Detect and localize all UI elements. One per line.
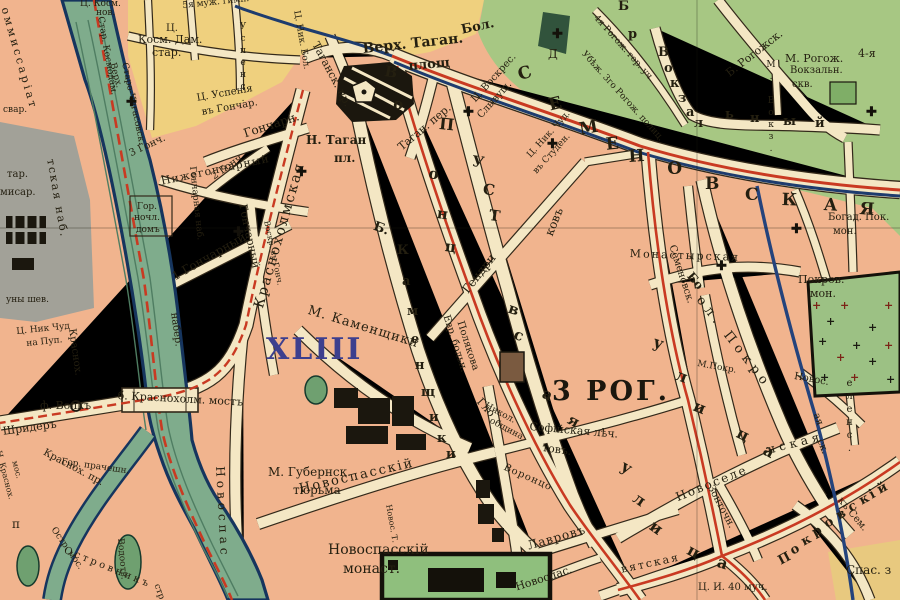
map-label: и <box>446 448 456 461</box>
map-label: набер. <box>168 312 183 347</box>
map-label: В <box>383 64 398 81</box>
map-label: М.Покр. <box>696 360 737 376</box>
map-label: Таганск. пр. <box>310 40 353 108</box>
map-label: Б <box>618 0 629 13</box>
cemetery-plus-icon: + <box>840 300 849 311</box>
district-label-xliii: XLIII <box>266 332 362 367</box>
map-label: к <box>437 432 446 445</box>
map-label: К <box>781 192 797 210</box>
cemetery-plus-icon: + <box>812 300 821 311</box>
map-label: вятская <box>620 552 681 575</box>
map-label: Т <box>488 208 501 224</box>
map-label: й <box>875 480 890 496</box>
map-label: п <box>12 518 20 530</box>
map-label: Б. <box>372 220 391 238</box>
map-label: площ <box>408 56 450 73</box>
cemetery-plus-icon: + <box>850 372 859 383</box>
map-label: В <box>658 46 669 59</box>
map-label: С <box>482 182 496 199</box>
map-label: Покров. <box>798 274 844 285</box>
district-label-3rog: 3 РОГ. <box>552 376 670 407</box>
cemetery-plus-icon: + <box>836 352 845 363</box>
map-label: б. Краснохолм. мостъ <box>117 390 243 408</box>
map-label: Е <box>605 136 620 154</box>
map-label: н <box>436 206 449 222</box>
map-label: С <box>516 64 534 84</box>
map-label: Гор. <box>137 203 157 212</box>
cemetery-plus-icon: + <box>818 336 827 347</box>
map-label: свар. <box>3 106 27 115</box>
map-label: щ <box>421 386 435 399</box>
map-label: Зонточн. <box>705 484 736 530</box>
map-label: на Пуп. <box>26 336 63 349</box>
cemetery-plus-icon: + <box>884 300 893 311</box>
map-label: Краснох. <box>66 328 82 376</box>
church-cross-icon: ✚ <box>552 28 563 41</box>
map-label: товъ. <box>541 442 572 457</box>
map-label: н <box>750 112 760 125</box>
map-label: Верх. Таган. <box>362 31 464 55</box>
map-label: П <box>438 116 455 133</box>
map-label: домъ <box>136 226 160 235</box>
map-label: еленс. <box>844 378 854 456</box>
map-label: П <box>776 550 793 567</box>
cemetery-plus-icon: + <box>820 372 829 383</box>
map-label: Софійская лѣч. <box>529 421 619 440</box>
map-label: Н <box>628 148 645 166</box>
map-label: ночл. <box>134 214 160 223</box>
map-label: у <box>651 334 666 352</box>
map-label: ф. Волкъ <box>40 400 91 411</box>
cemetery-plus-icon: + <box>886 374 895 385</box>
map-label: 5я муж. гимн. <box>182 0 250 11</box>
map-label: пл. <box>334 152 355 164</box>
cemetery-plus-icon: + <box>852 340 861 351</box>
map-label: ц <box>444 239 457 255</box>
church-cross-icon: ✚ <box>233 226 244 239</box>
map-label: р <box>628 28 637 41</box>
map-label: Ц. Ник Чуд <box>16 322 70 337</box>
map-label: уны шев. <box>6 296 49 305</box>
map-label: о <box>788 542 802 558</box>
map-label: К <box>397 244 409 257</box>
map-label: н <box>415 359 425 372</box>
map-label: Косм. Дам. <box>138 34 202 45</box>
map-label: монаст. <box>343 562 400 576</box>
church-cross-icon: ✚ <box>716 260 727 273</box>
map-label: Е <box>547 95 564 115</box>
map-label: ц <box>684 542 702 562</box>
map-label: М. Губернск. <box>268 466 351 478</box>
map-label: Новоспас <box>214 466 231 559</box>
map-label: и <box>429 411 439 424</box>
map-label: Гендри <box>460 252 498 296</box>
map-label: к <box>670 77 679 90</box>
map-label: У <box>471 154 485 171</box>
map-label: В <box>705 176 719 193</box>
map-label: ь <box>725 108 734 121</box>
map-label: Н. Таган <box>306 134 366 146</box>
map-label: о <box>822 515 836 531</box>
map-label: Новос. Т. <box>384 504 399 543</box>
map-label: и <box>691 398 708 417</box>
map-label: р <box>810 524 824 540</box>
map-label: нская <box>766 430 824 455</box>
map-label: Д <box>548 48 558 60</box>
cemetery-plus-icon: + <box>826 316 835 327</box>
map-label: М <box>578 119 599 139</box>
map-label: Вокзальн. <box>790 66 843 76</box>
map-label: Новоспасскій <box>328 543 429 557</box>
map-label: а <box>402 275 410 288</box>
map-label: мон. <box>833 227 857 237</box>
map-label: л <box>630 490 648 510</box>
map-label: М. Вокз. <box>766 60 775 156</box>
church-cross-icon: ✚ <box>547 138 558 151</box>
church-cross-icon: ✚ <box>866 106 877 119</box>
map-label: ы <box>783 115 796 128</box>
map-label: Краснохолмская <box>252 160 307 310</box>
map-label: тская наб. <box>45 158 70 239</box>
map-label: оммиссаріат <box>0 6 39 111</box>
map-label: Гончарн. <box>242 110 301 139</box>
map-label: С <box>745 187 759 204</box>
map-label: м <box>407 305 418 318</box>
map-label: ол. Покро <box>694 294 774 391</box>
map-label: тюрьма <box>293 484 341 496</box>
church-cross-icon: ✚ <box>126 96 137 109</box>
map-label: скв. <box>792 80 813 90</box>
map-label: 4-я <box>858 48 876 59</box>
map-label: с <box>512 327 526 344</box>
map-label: Бол. <box>460 17 495 37</box>
cemetery-plus-icon: + <box>868 356 877 367</box>
map-label: Спас. з <box>846 564 891 576</box>
map-label: мисар. <box>0 188 36 198</box>
map-label: ц <box>734 425 752 445</box>
map-label: М. Рогож. <box>785 53 843 64</box>
church-cross-icon: ✚ <box>463 106 474 119</box>
map-label: ковъ <box>543 206 565 237</box>
map-label: Новоспас. <box>514 564 573 593</box>
map-label: мос. <box>10 460 22 480</box>
map-label: мон. <box>810 288 836 299</box>
map-label: Воронцо <box>502 463 554 493</box>
historical-map-canvas: XLIII 3 РОГ. оммиссаріаттская наб.свар.т… <box>0 0 900 600</box>
map-label: О <box>667 160 682 178</box>
map-label: о <box>664 62 673 75</box>
map-label: стар. <box>152 47 181 58</box>
cemetery-plus-icon: + <box>884 340 893 351</box>
map-label: и <box>647 518 666 538</box>
map-label: а <box>715 554 730 572</box>
map-label: Лавровъ <box>526 523 587 551</box>
map-label: л <box>694 117 703 130</box>
map-label: в <box>506 301 521 318</box>
map-label: о <box>427 166 439 183</box>
church-cross-icon: ✚ <box>296 166 307 179</box>
map-labels-layer: XLIII 3 РОГ. оммиссаріаттская наб.свар.т… <box>0 0 900 600</box>
map-label: стр <box>152 583 166 600</box>
map-label: Богад. Пок. <box>828 213 889 223</box>
map-label: ая <box>811 412 825 427</box>
map-label: к <box>799 533 813 549</box>
map-label: л <box>674 367 690 386</box>
map-label: Н. Краснох. <box>0 450 15 500</box>
map-label: у <box>618 458 635 477</box>
cemetery-plus-icon: + <box>868 322 877 333</box>
map-label: Шридеръ <box>2 418 57 436</box>
map-label: е <box>411 333 419 346</box>
church-cross-icon: ✚ <box>791 223 802 236</box>
map-label: Ц. И. 40 муч. <box>698 583 768 593</box>
map-label: о <box>392 96 405 113</box>
map-label: з <box>678 92 686 105</box>
map-label: й <box>815 117 825 130</box>
map-label: тар. <box>7 170 28 180</box>
map-label: Ц. Ник. Бол. <box>291 10 310 70</box>
